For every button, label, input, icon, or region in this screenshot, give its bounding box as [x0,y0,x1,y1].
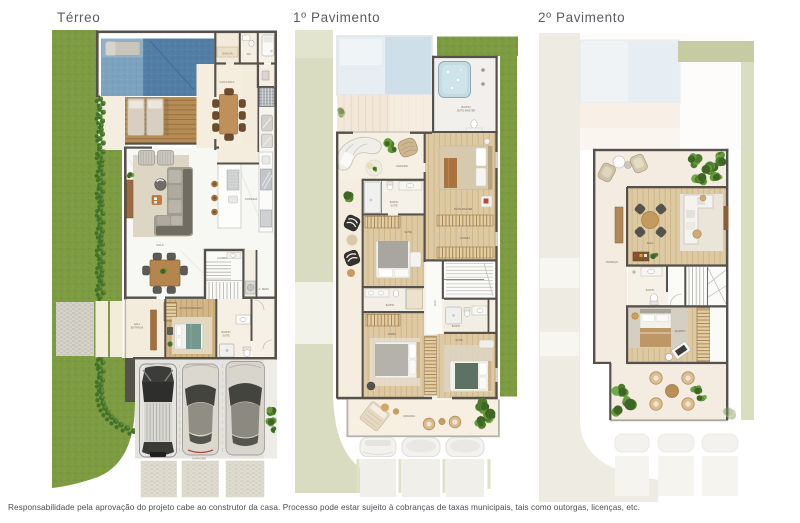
svg-text:TERRAÇO: TERRAÇO [606,261,618,264]
svg-text:SUÍTE RESERVADA: SUÍTE RESERVADA [179,307,203,310]
svg-text:CLOSET: CLOSET [460,237,470,240]
svg-text:BANHO: BANHO [386,304,395,307]
svg-text:QUARTO: QUARTO [675,330,686,333]
svg-text:VARANDA: VARANDA [396,165,408,168]
svg-text:SALA: SALA [647,242,654,245]
svg-text:Térreo: Térreo [57,10,100,25]
svg-text:SUÍTE MASTER: SUÍTE MASTER [454,208,473,211]
svg-text:COZINHA: COZINHA [245,197,258,201]
svg-text:1º Pavimento: 1º Pavimento [293,10,380,25]
svg-text:SUÍTE MASTER: SUÍTE MASTER [457,110,476,113]
svg-text:SAUNA: SAUNA [222,52,233,56]
svg-text:SALA: SALA [156,243,163,247]
svg-text:LAVABO: LAVABO [217,256,227,260]
svg-text:Responsabilidade pela aprovaçã: Responsabilidade pela aprovação do proje… [8,503,640,512]
svg-text:CIRC.: CIRC. [434,299,437,306]
svg-text:SUÍTE: SUÍTE [222,335,230,338]
svg-text:GARAGEM: GARAGEM [192,457,206,461]
svg-text:HALL: HALL [134,322,141,326]
svg-text:SUÍTE: SUÍTE [390,204,397,207]
svg-text:A. SERV.: A. SERV. [258,287,269,291]
svg-text:2º Pavimento: 2º Pavimento [538,10,625,25]
svg-text:VARANDA: VARANDA [403,415,415,418]
svg-text:VARANDA: VARANDA [219,80,234,84]
svg-text:ENTRADA: ENTRADA [131,326,144,330]
svg-text:SUÍTE: SUÍTE [404,231,412,234]
svg-text:WC: WC [247,52,252,56]
svg-text:BANHO: BANHO [646,289,655,292]
svg-text:DORM.: DORM. [388,333,397,336]
svg-text:SUÍTE: SUÍTE [455,339,463,342]
svg-text:BANHO: BANHO [452,325,461,328]
